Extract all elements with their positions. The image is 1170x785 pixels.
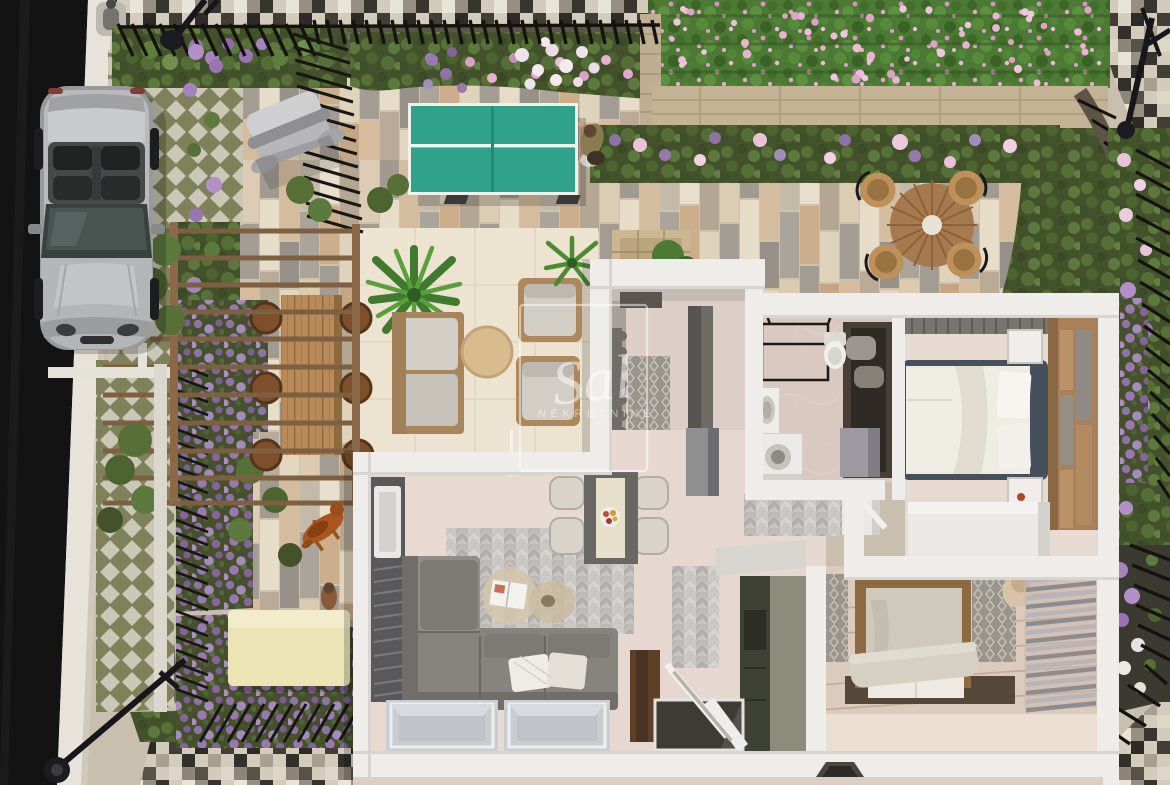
svg-text:NEKRETNINE: NEKRETNINE: [538, 408, 655, 420]
